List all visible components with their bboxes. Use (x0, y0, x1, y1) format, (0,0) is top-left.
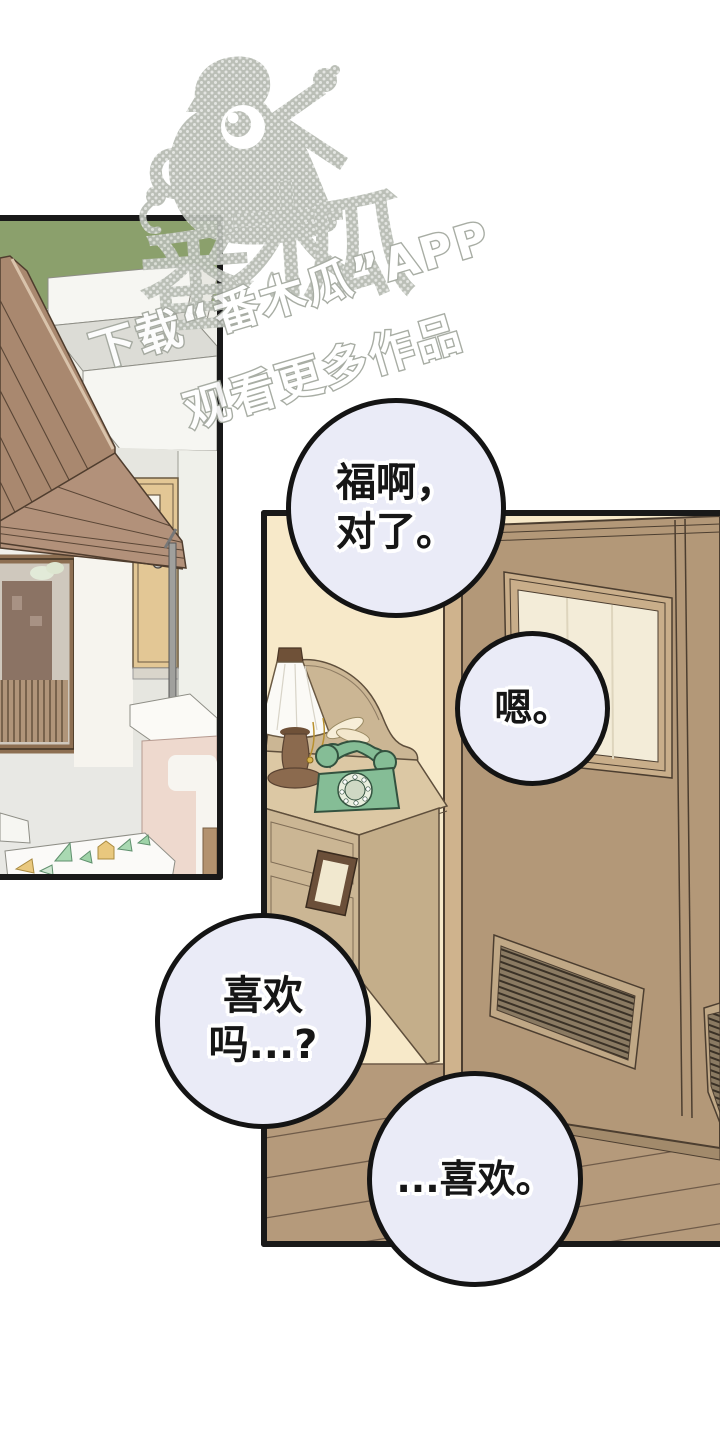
mascot-eye (216, 100, 270, 154)
bubble-text-line: 对了。 (336, 508, 456, 557)
speech-bubble-3: 喜欢 吗...? (155, 913, 371, 1129)
comic-page: 番 木 瓜 下载“番木瓜”APP 观看更多作品 福啊， 对了。 嗯。 喜欢 吗.… (0, 0, 720, 1440)
bubble-text-line: 嗯。 (494, 685, 570, 731)
bubble-text-line: ...喜欢。 (396, 1156, 553, 1202)
speech-bubble-1: 福啊， 对了。 (286, 398, 506, 618)
svg-text:木: 木 (224, 168, 356, 318)
speech-bubble-2: 嗯。 (455, 631, 610, 786)
house-window (0, 559, 74, 749)
bubble-text-line: 喜欢 (223, 972, 303, 1021)
bubble-text-line: 吗...? (209, 1021, 318, 1070)
bubble-text-line: 福啊， (336, 459, 456, 508)
rotary-phone-icon (315, 741, 399, 812)
house-wall (74, 557, 133, 767)
house-exterior (0, 221, 217, 874)
drain-pole (169, 543, 176, 701)
speech-bubble-4: ...喜欢。 (367, 1071, 583, 1287)
svg-text:瓜: 瓜 (294, 178, 418, 320)
panel-house-exterior (0, 215, 223, 880)
wooden-door[interactable] (462, 516, 720, 1148)
